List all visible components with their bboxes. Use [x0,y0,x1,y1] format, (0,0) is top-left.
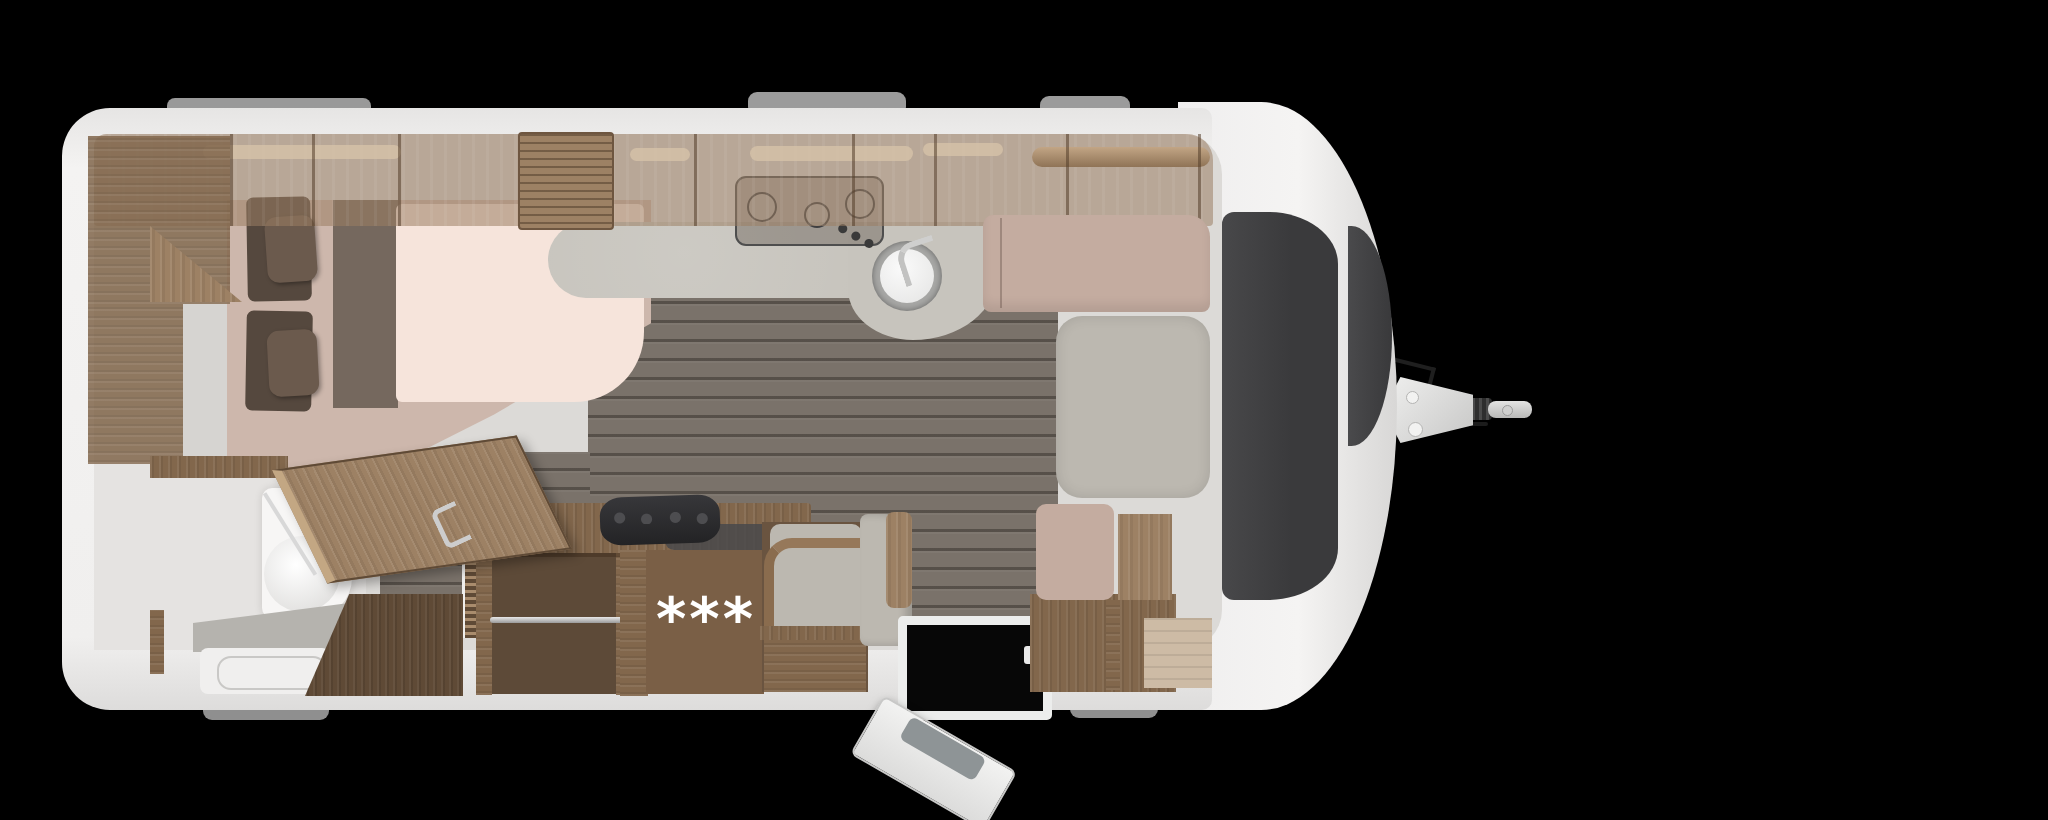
hitch-cover [1395,377,1473,443]
bathroom-shelf [150,456,288,478]
shelf-lower-front [764,640,866,692]
front-seat [1056,316,1210,498]
black-headrest-studs [612,512,708,524]
pillow-lower-top [266,329,319,398]
shelf-strip [760,626,868,640]
hitch-cover-bolt-top [1406,391,1419,404]
front-floor-light [1144,618,1212,688]
bottom-bench-panel [1106,600,1120,690]
locker-divider-6 [934,134,937,226]
caravan-floorplan-scene: *** [0,0,2048,820]
locker-divider-3 [398,134,401,226]
door-side-seat-cap [886,512,912,608]
bathroom-wall-strip [150,610,164,674]
locker-slot-mid [750,146,913,161]
locker-divider-5 [852,134,855,226]
bed-runner [333,200,398,408]
front-backrest-seam [1000,218,1002,308]
locker-divider-1 [230,134,233,226]
front-panel-main [1222,212,1338,600]
locker-divider-2 [312,134,315,226]
locker-slot-mid-left [630,148,690,161]
locker-divider-7 [1066,134,1069,226]
hitch-cover-bolt-bottom [1408,422,1423,437]
entry-door-opening [898,616,1052,720]
bedroom-floor-strip [183,296,227,462]
locker-roller-bar [1032,147,1210,167]
equipment-badge: *** [654,596,758,642]
star-cabinet-side [620,550,648,696]
bottom-bench-cushion [1036,504,1114,600]
locker-divider-8 [1198,134,1201,226]
hitch-coupling-detail [1502,405,1513,416]
bottom-bench-side-table [1118,514,1172,600]
wardrobe-rear-lower [88,304,183,464]
tambour-cabinet [518,132,614,230]
locker-divider-4 [694,134,697,226]
front-backrest [983,215,1210,312]
